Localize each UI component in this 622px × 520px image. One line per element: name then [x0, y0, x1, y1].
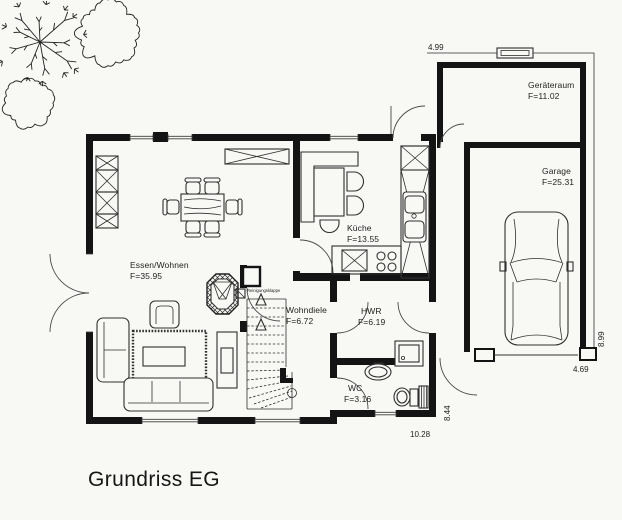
room-label-essen-wohnen: Essen/Wohnen F=35.95 [130, 260, 189, 281]
walls [86, 62, 586, 424]
room-label-wohndiele: Wohndiele F=6.72 [286, 305, 327, 326]
room-label-wc: WC F=3.16 [344, 383, 371, 404]
radiator [419, 386, 428, 408]
room-label-hwr: HWR F=6.19 [358, 306, 385, 327]
cooktop-burner [388, 263, 396, 271]
kitchen-table [314, 168, 344, 216]
svg-text:Geräteraum: Geräteraum [528, 80, 574, 90]
svg-text:F=6.72: F=6.72 [286, 316, 313, 326]
bush-icon-small [2, 78, 55, 129]
svg-text:Garage: Garage [542, 166, 571, 176]
kitchen-counter-bottom [332, 246, 401, 274]
tree-icon [0, 1, 87, 86]
room-label-geraeteraum: Geräteraum F=11.02 [528, 80, 574, 101]
svg-text:F=11.02: F=11.02 [528, 91, 560, 101]
cooktop-burner [377, 252, 385, 260]
dimension-house-bottom: 10.28 [410, 430, 431, 439]
sideboard [225, 149, 289, 164]
chimney-hatch-label: Reinigungsklappe [247, 288, 281, 293]
shelf-unit [96, 156, 118, 228]
utility-wc-fixtures [365, 341, 428, 408]
cooktop-burner [377, 263, 385, 271]
sink [403, 192, 426, 242]
kitchen-chair [347, 196, 364, 215]
kitchen-chair [320, 220, 339, 233]
svg-text:F=25.31: F=25.31 [542, 177, 574, 187]
kitchen-furniture [301, 146, 429, 278]
cooktop-burner [388, 252, 396, 260]
svg-text:F=13.55: F=13.55 [347, 234, 379, 244]
armchair [150, 301, 179, 328]
floor-plan-page: Essen/Wohnen F=35.95 Küche F=13.55 Wohnd… [0, 0, 622, 520]
washbasin [365, 363, 391, 380]
svg-text:F=35.95: F=35.95 [130, 271, 162, 281]
room-label-kueche: Küche F=13.55 [347, 223, 379, 244]
dimension-top: 4.99 [428, 43, 444, 52]
tv-board [217, 332, 237, 388]
svg-text:Wohndiele: Wohndiele [286, 305, 327, 315]
room-label-garage: Garage F=25.31 [542, 166, 574, 187]
svg-text:WC: WC [348, 383, 362, 393]
dimension-house-right: 8.44 [443, 405, 452, 421]
kitchen-chair [347, 172, 364, 191]
svg-text:Küche: Küche [347, 223, 372, 233]
dining-table [181, 194, 224, 221]
kitchen-counter-right [401, 146, 429, 278]
toilet [394, 388, 418, 406]
washing-machine [395, 341, 423, 366]
svg-text:HWR: HWR [361, 306, 382, 316]
coffee-table [143, 347, 185, 366]
garage-elements [475, 212, 596, 361]
svg-text:F=6.19: F=6.19 [358, 317, 385, 327]
floor-plan-canvas: Essen/Wohnen F=35.95 Küche F=13.55 Wohnd… [0, 0, 622, 520]
dimension-garage-right: 8.99 [597, 331, 606, 347]
dimension-garage-bottom: 4.69 [573, 365, 589, 374]
svg-text:Essen/Wohnen: Essen/Wohnen [130, 260, 189, 270]
garage-pillar [475, 349, 494, 361]
svg-text:F=3.16: F=3.16 [344, 394, 371, 404]
garage-corner [580, 348, 596, 360]
plan-title: Grundriss EG [88, 468, 220, 491]
car-icon [500, 212, 573, 345]
